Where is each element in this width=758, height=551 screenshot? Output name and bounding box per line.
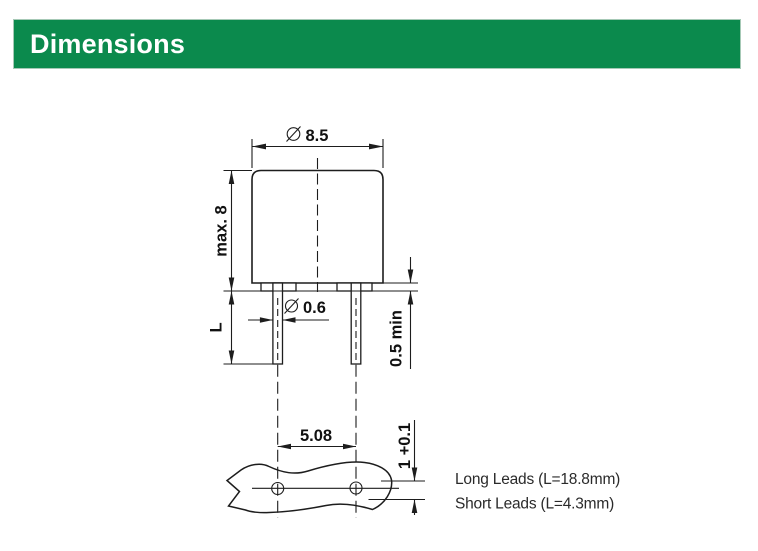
pcb-cross-section [227,462,392,513]
dim-label-pcb-thickness: 1 +0.1 [396,423,414,469]
dim-label-lead-length: L [208,322,226,332]
note-long-leads: Long Leads (L=18.8mm) [455,471,620,488]
arrowhead [260,317,273,322]
dim-label-lead-spacing: 5.08 [300,427,332,445]
dim-lead-spacing: 5.08 [278,427,356,449]
diameter-symbol-icon [287,127,301,142]
dim-label-body-diameter: 8.5 [306,127,329,145]
arrowhead [229,291,235,305]
page: Dimensions 8.5 [0,0,758,551]
diameter-symbol-slash [285,299,299,314]
dim-label-lead-diameter: 0.6 [303,299,326,317]
dimension-drawing: 8.5 max. 8 L [0,0,758,551]
arrowhead [343,444,356,449]
arrowhead [229,171,235,185]
diameter-symbol-slash [287,127,301,142]
note-short-leads: Short Leads (L=4.3mm) [455,496,614,513]
arrowhead [412,500,418,514]
arrowhead [369,144,383,150]
arrowhead [278,444,291,449]
arrowhead [283,317,296,322]
dim-label-body-height: max. 8 [213,205,231,256]
dim-standoff-min: 0.5 min [383,257,418,369]
dim-body-height: max. 8 [213,171,253,292]
arrowhead [252,144,266,150]
dim-label-standoff-min: 0.5 min [388,310,406,367]
arrowhead [408,291,414,305]
arrowhead [408,270,414,284]
arrowhead [229,278,235,292]
dim-lead-diameter: 0.6 [248,299,329,323]
arrowhead [229,351,235,365]
lead-length-notes: Long Leads (L=18.8mm) Short Leads (L=4.3… [455,471,620,513]
diameter-symbol-icon [285,299,299,314]
dim-lead-length: L [208,291,284,364]
